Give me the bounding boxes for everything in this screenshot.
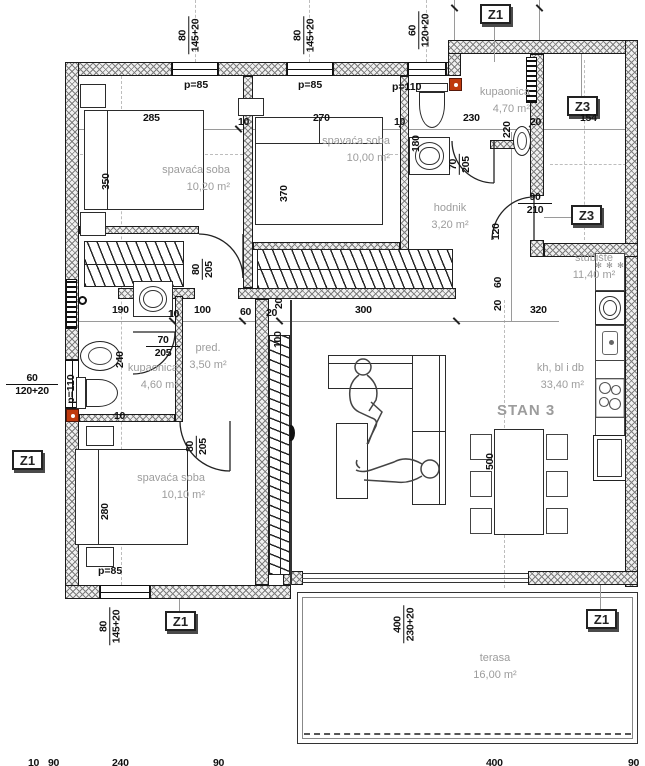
wall (530, 240, 544, 257)
dimension-label: 120 (490, 223, 502, 240)
shower-head-icon (78, 296, 87, 305)
opening-size-label: 80 145+20 (97, 608, 122, 646)
terrace-sliding-door (302, 573, 530, 583)
opening-size-label: 60 120+20 (406, 12, 431, 50)
dimension-label: 10 (394, 116, 405, 128)
dimension-label: 320 (530, 304, 547, 316)
wall (79, 414, 175, 422)
dimension-label: 500 (484, 453, 496, 470)
opening-size-label: 70 205 (146, 334, 180, 359)
opening-width: 60 (6, 372, 58, 385)
parapet-label: p=85 (184, 79, 208, 91)
marker-leader-line (494, 26, 495, 62)
parapet-label: p=85 (98, 565, 122, 577)
marker-leader-line (544, 217, 571, 218)
opening-size-label: 80 205 (190, 259, 215, 280)
opening-height: 120+20 (419, 12, 431, 50)
floor-plan: ✻ ✻ ✻ (0, 0, 645, 766)
window (100, 585, 150, 599)
dimension-label: 20 (273, 298, 285, 309)
parapet-label: p=85 (298, 79, 322, 91)
cooktop (595, 378, 625, 418)
room-area: 11,40 m² (552, 267, 636, 284)
room-label: spavaća soba 10,10 m² (80, 470, 205, 504)
room-name: spavaća soba (80, 470, 205, 487)
dimension-label: 10 (238, 116, 249, 128)
opening-size-label: 400 230+20 (391, 606, 416, 644)
opening-size-label: 80 205 (184, 436, 209, 457)
opening-size-label: 80 145+20 (176, 17, 201, 55)
dimension-label: 220 (501, 121, 513, 138)
chair (546, 508, 568, 534)
room-area: 10,00 m² (252, 150, 390, 167)
radiator (66, 279, 77, 329)
opening-height: 230+20 (404, 606, 416, 644)
opening-width: 70 (447, 154, 460, 175)
dimension-label: 10 (114, 410, 125, 422)
dimension-label: 370 (278, 185, 290, 202)
dimension-label: 20 (492, 300, 504, 311)
opening-height: 205 (197, 436, 209, 457)
axis-line (550, 164, 636, 165)
room-label: pred. 3,50 m² (168, 340, 248, 374)
opening-height: 205 (203, 259, 215, 280)
room-name: spavaća soba (252, 133, 390, 150)
wall (150, 585, 291, 599)
room-name: kupaonica (78, 360, 178, 377)
chair (546, 434, 568, 460)
dimension-label: 10 (28, 757, 39, 766)
chair (470, 471, 492, 497)
nightstand (86, 547, 114, 567)
room-name: hodnik (400, 200, 500, 217)
dimension-label: 90 (48, 757, 59, 766)
nightstand (80, 212, 106, 236)
dimension-label: 90 (628, 757, 639, 766)
dimension-label: 280 (99, 503, 111, 520)
room-area: 33,40 m² (462, 377, 584, 394)
parapet-label: p=110 (392, 81, 422, 93)
opening-size-label: 60 120+20 (6, 372, 58, 397)
wall (238, 288, 456, 299)
window (172, 62, 218, 76)
room-label: hodnik 3,20 m² (400, 200, 500, 234)
opening-size-label: 80 145+20 (291, 17, 316, 55)
wall (65, 585, 100, 599)
marker-leader-line (600, 585, 601, 609)
dimension-label: 350 (100, 173, 112, 190)
opening-height: 145+20 (110, 608, 122, 646)
opening-width: 80 (190, 259, 203, 280)
dimension-label: 400 (486, 757, 503, 766)
plan-marker-z1: Z1 (165, 611, 196, 631)
room-area: 10,10 m² (80, 487, 205, 504)
room-area: 16,00 m² (425, 667, 565, 684)
dimension-label: 240 (112, 757, 129, 766)
opening-size-label: 70 205 (447, 154, 472, 175)
nightstand (238, 98, 264, 116)
kitchen-sink-round (595, 291, 625, 325)
dimension-label: 285 (143, 112, 160, 124)
dimension-label: 240 (114, 351, 126, 368)
dimension-label: 270 (313, 112, 330, 124)
fridge (593, 435, 626, 481)
wall (625, 40, 638, 587)
utility-marker (66, 409, 79, 422)
partition-line (290, 300, 292, 585)
opening-height: 120+20 (6, 385, 58, 397)
wall (333, 62, 408, 76)
dimension-label: 154 (580, 112, 597, 124)
washing-machine (133, 281, 173, 317)
kitchen-sink (595, 325, 625, 361)
room-label: spavaća soba 10,00 m² (252, 133, 390, 167)
opening-width: 90 (518, 191, 552, 204)
wardrobe (257, 249, 453, 289)
dining-table (494, 429, 544, 535)
person-lying-icon (350, 438, 454, 494)
terrace-dashed-edge (304, 733, 631, 735)
opening-width: 80 (97, 608, 110, 646)
chair (546, 471, 568, 497)
nightstand (80, 84, 106, 108)
opening-size-label: 90 210 (518, 191, 552, 216)
room-area: 3,50 m² (168, 357, 248, 374)
wall (528, 571, 638, 585)
dimension-label: 10 (168, 308, 179, 320)
dimension-label: 90 (213, 757, 224, 766)
opening-height: 145+20 (304, 17, 316, 55)
wall (255, 299, 269, 585)
plan-marker-z1: Z1 (12, 450, 43, 470)
chair (470, 508, 492, 534)
dimension-label: 190 (112, 304, 129, 316)
opening-height: 210 (518, 204, 552, 216)
dimension-label: 100 (194, 304, 211, 316)
plan-marker-z1: Z1 (586, 609, 617, 629)
parapet-label: p=110 (65, 374, 77, 404)
room-name: stubište (552, 250, 636, 267)
room-name: terasa (425, 650, 565, 667)
faucet-icon (609, 340, 614, 345)
sink (513, 126, 531, 156)
wardrobe (269, 335, 290, 575)
opening-width: 400 (391, 606, 404, 644)
opening-width: 80 (176, 17, 189, 55)
opening-width: 60 (406, 12, 419, 50)
dimension-label: 100 (272, 331, 284, 348)
room-label: kh, bl i db 33,40 m² (462, 360, 584, 394)
opening-width: 70 (146, 334, 180, 347)
marker-leader-line (179, 599, 180, 611)
room-area: 3,20 m² (400, 217, 500, 234)
window (287, 62, 333, 76)
opening-width: 80 (184, 436, 197, 457)
nightstand (86, 426, 114, 446)
dimension-label: 230 (463, 112, 480, 124)
opening-width: 80 (291, 17, 304, 55)
dimension-label: 180 (410, 135, 422, 152)
dimension-label: 60 (240, 306, 251, 318)
marker-leader-line (581, 54, 582, 96)
wall (65, 62, 172, 76)
person-sitting-icon (336, 356, 398, 448)
apartment-title: STAN 3 (497, 402, 555, 419)
dimension-chain-line (65, 321, 559, 322)
room-name: pred. (168, 340, 248, 357)
window (408, 62, 446, 76)
sofa-cushion-line (413, 431, 445, 432)
room-name: kh, bl i db (462, 360, 584, 377)
room-area: 4,60 m² (78, 377, 178, 394)
dimension-label: 20 (530, 116, 541, 128)
plan-marker-z3: Z3 (571, 205, 602, 225)
wall (448, 40, 638, 54)
room-label: kupaonica 4,60 m² (78, 360, 178, 394)
dimension-label: 300 (355, 304, 372, 316)
wall (218, 62, 287, 76)
opening-height: 145+20 (189, 17, 201, 55)
dimension-label: 60 (492, 277, 504, 288)
room-label: stubište 11,40 m² (552, 250, 636, 284)
room-label: terasa 16,00 m² (425, 650, 565, 684)
opening-height: 205 (146, 347, 180, 359)
opening-height: 205 (460, 154, 472, 175)
plan-marker-z1: Z1 (480, 4, 511, 24)
